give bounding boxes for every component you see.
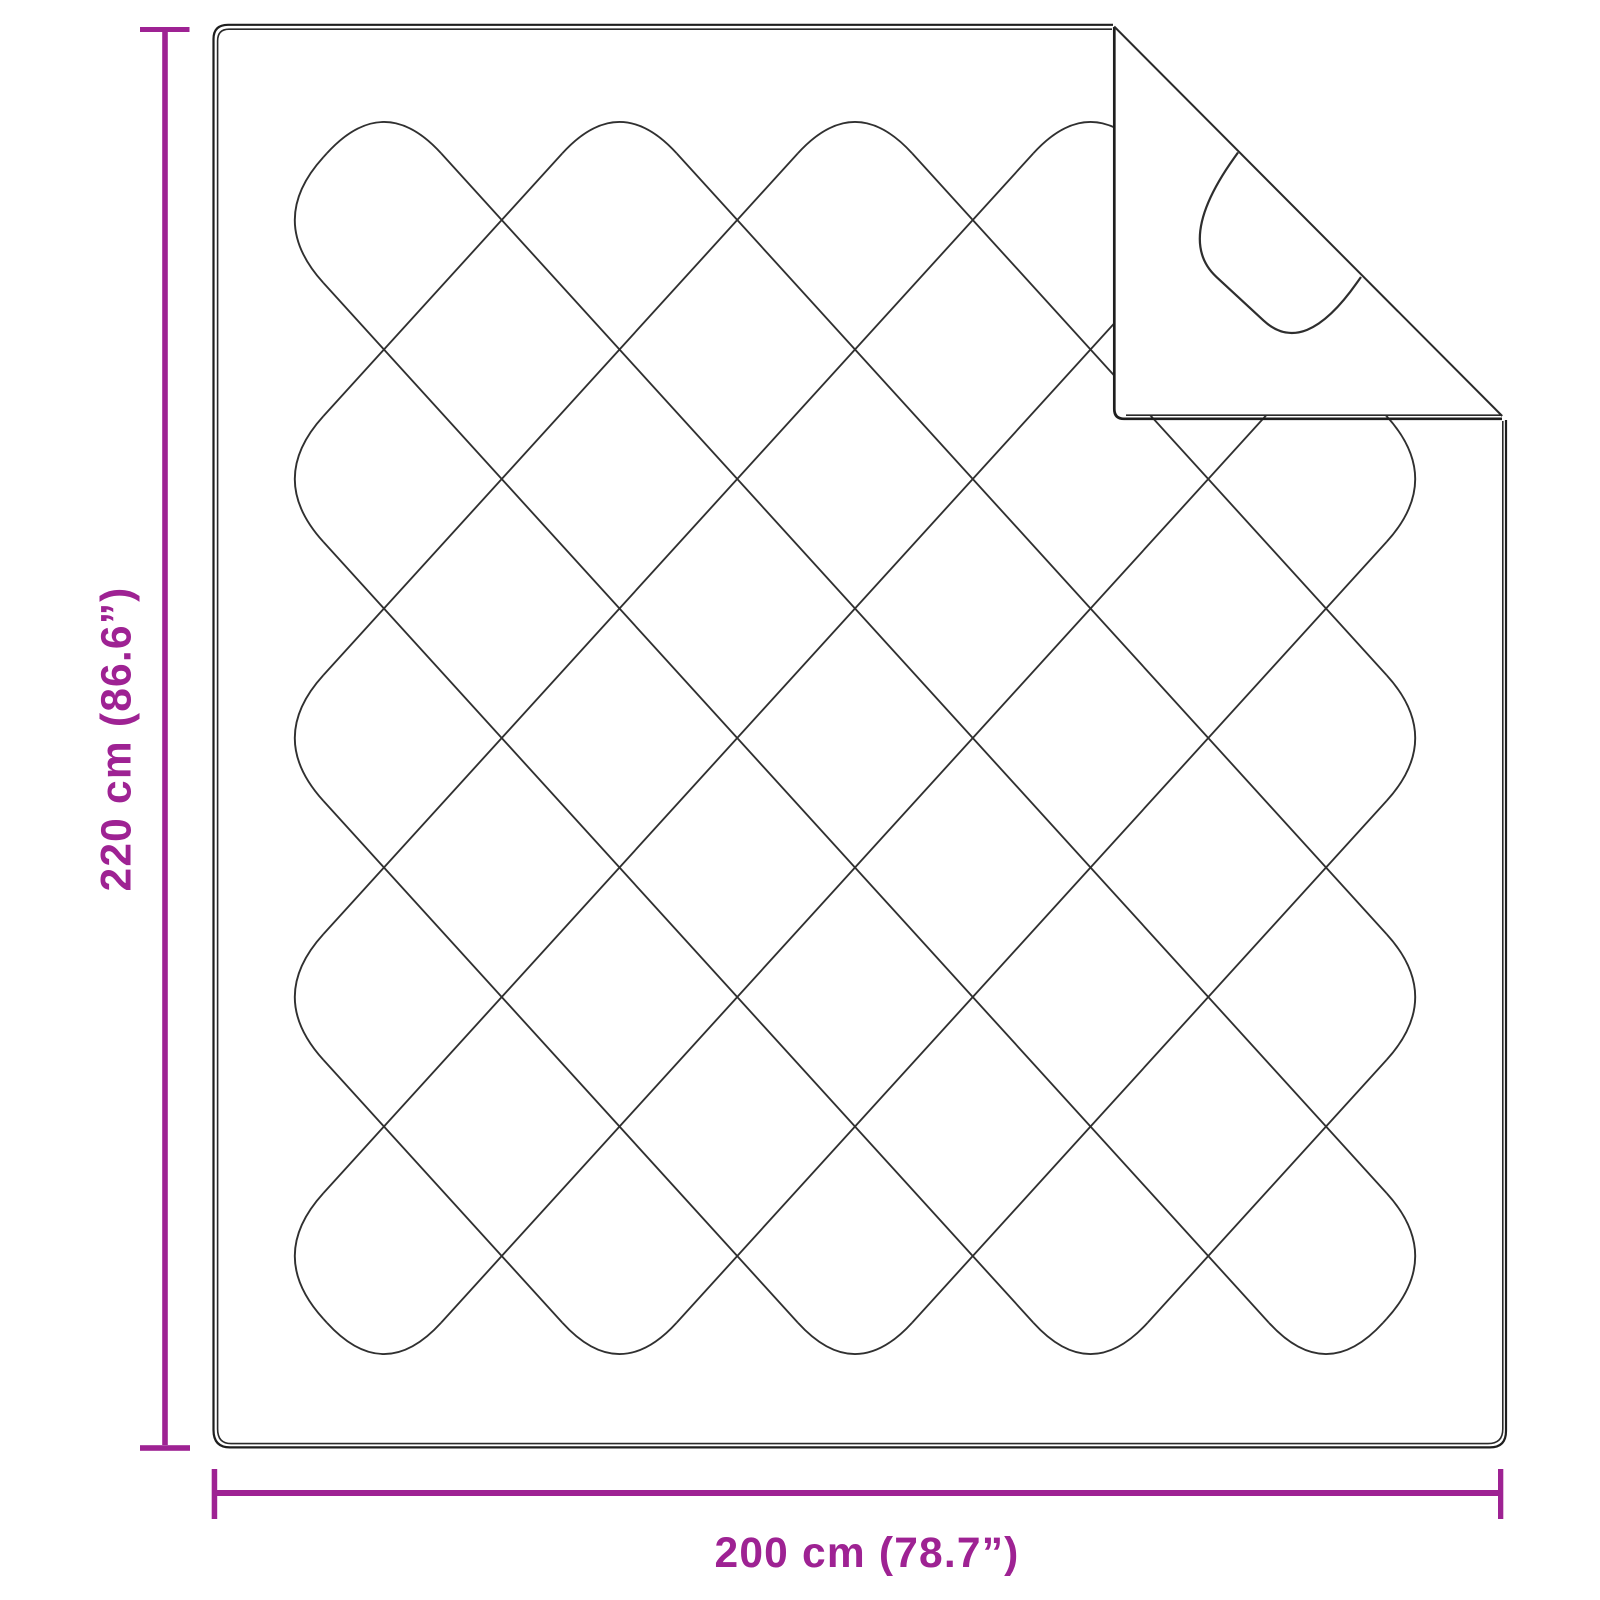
svg-text:200 cm (78.7”): 200 cm (78.7”) — [714, 1530, 1019, 1577]
svg-text:220 cm (86.6”): 220 cm (86.6”) — [94, 586, 141, 891]
